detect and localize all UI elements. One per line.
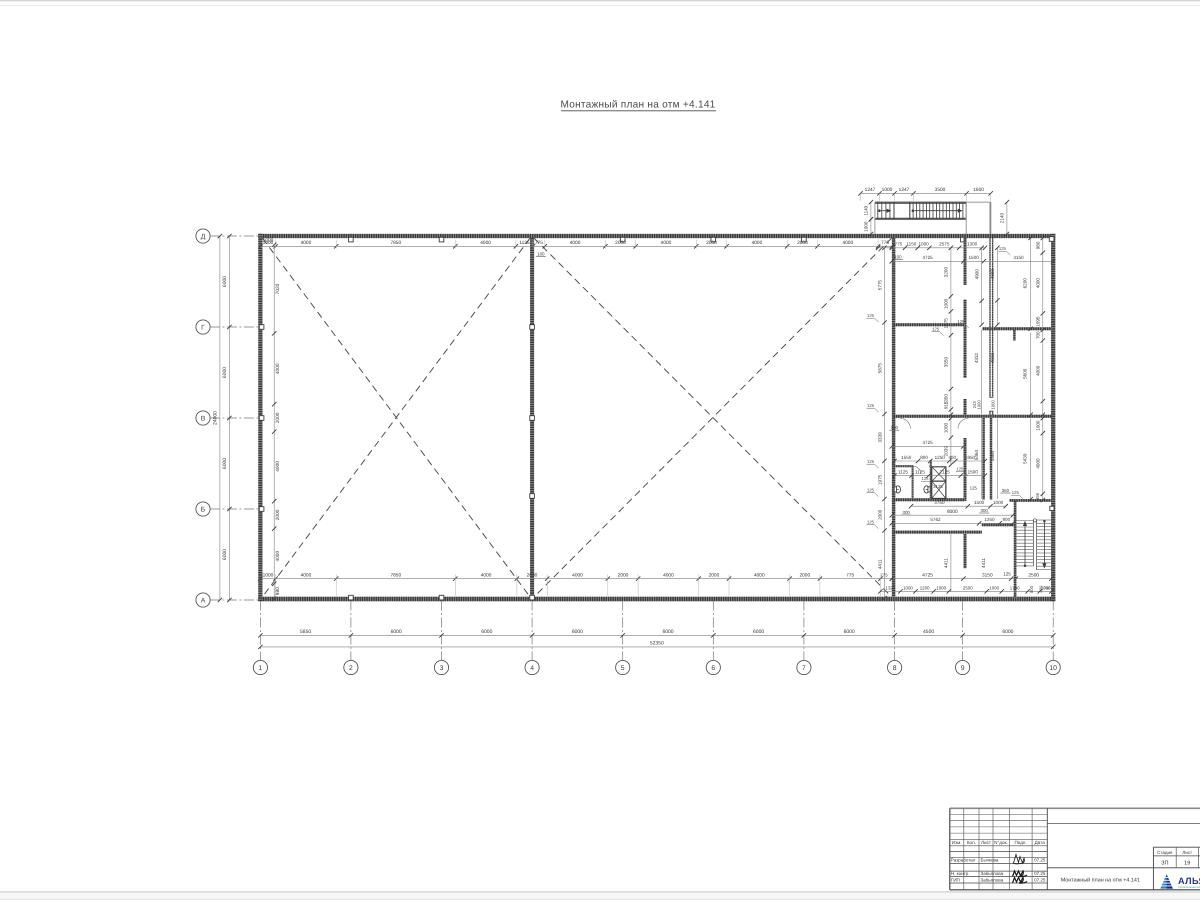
svg-text:8000: 8000 xyxy=(947,509,958,515)
svg-text:Д: Д xyxy=(201,233,206,240)
svg-text:6000: 6000 xyxy=(572,629,583,635)
svg-text:4725: 4725 xyxy=(922,572,933,578)
svg-text:2575: 2575 xyxy=(939,242,950,247)
svg-text:1350: 1350 xyxy=(984,517,995,522)
svg-text:Разработал: Разработал xyxy=(951,857,976,862)
svg-text:6200: 6200 xyxy=(1023,278,1028,289)
svg-text:5875: 5875 xyxy=(877,363,882,374)
svg-text:5775: 5775 xyxy=(877,280,882,291)
svg-text:1000: 1000 xyxy=(944,298,949,309)
svg-text:Б: Б xyxy=(201,506,206,513)
svg-text:359: 359 xyxy=(1035,492,1040,500)
svg-text:4000: 4000 xyxy=(275,551,281,562)
svg-text:А: А xyxy=(201,597,206,604)
svg-text:100: 100 xyxy=(894,254,902,259)
svg-text:8: 8 xyxy=(893,665,897,672)
svg-text:1000: 1000 xyxy=(991,399,996,409)
svg-text:3125: 3125 xyxy=(933,484,943,489)
svg-text:Монтажный план на отм +4.141: Монтажный план на отм +4.141 xyxy=(560,100,715,111)
svg-text:2000: 2000 xyxy=(615,240,626,246)
svg-text:Лист: Лист xyxy=(981,840,992,845)
svg-text:1550: 1550 xyxy=(901,455,912,460)
svg-text:Забьялова: Забьялова xyxy=(981,871,1004,876)
svg-text:125: 125 xyxy=(867,403,875,408)
svg-text:3150: 3150 xyxy=(982,572,993,578)
svg-text:1250: 1250 xyxy=(935,455,946,460)
svg-text:Г: Г xyxy=(201,324,205,331)
svg-text:Н. контр.: Н. контр. xyxy=(951,871,970,876)
svg-text:1000: 1000 xyxy=(1036,420,1041,431)
svg-text:В: В xyxy=(201,415,206,422)
svg-text:125: 125 xyxy=(956,466,964,471)
svg-text:1300: 1300 xyxy=(967,242,978,247)
svg-text:5: 5 xyxy=(621,665,625,672)
svg-text:125: 125 xyxy=(867,488,875,493)
svg-text:Дата: Дата xyxy=(1035,840,1046,845)
svg-text:2000: 2000 xyxy=(275,509,281,520)
svg-text:4411: 4411 xyxy=(877,559,882,569)
svg-text:2140: 2140 xyxy=(1000,213,1005,224)
svg-text:980: 980 xyxy=(275,587,281,595)
svg-text:1600: 1600 xyxy=(973,187,984,193)
svg-text:4000: 4000 xyxy=(481,572,492,578)
svg-text:2000: 2000 xyxy=(618,572,629,578)
svg-text:980: 980 xyxy=(1036,241,1041,249)
svg-text:2000: 2000 xyxy=(706,240,717,246)
svg-text:9: 9 xyxy=(961,665,965,672)
svg-text:3750: 3750 xyxy=(934,500,945,505)
svg-text:1125: 1125 xyxy=(915,469,925,474)
svg-text:4000: 4000 xyxy=(301,572,312,578)
svg-text:1000: 1000 xyxy=(989,585,999,590)
svg-text:7850: 7850 xyxy=(390,572,401,578)
svg-text:800: 800 xyxy=(1002,517,1010,522)
svg-text:300: 300 xyxy=(903,510,911,515)
svg-text:4150: 4150 xyxy=(1013,255,1024,260)
svg-text:07.25: 07.25 xyxy=(1034,877,1046,882)
svg-text:5850: 5850 xyxy=(300,629,311,635)
svg-text:N°док.: N°док. xyxy=(994,840,1008,845)
svg-text:4000: 4000 xyxy=(275,363,281,374)
svg-text:5762: 5762 xyxy=(930,517,941,522)
svg-text:6000: 6000 xyxy=(222,367,228,378)
svg-text:Забьялова: Забьялова xyxy=(981,877,1004,882)
svg-text:1000: 1000 xyxy=(882,187,893,193)
svg-text:2: 2 xyxy=(349,665,353,672)
svg-text:Стадия: Стадия xyxy=(1157,850,1173,855)
svg-text:7: 7 xyxy=(802,665,806,672)
svg-text:915: 915 xyxy=(943,401,948,409)
svg-text:4000: 4000 xyxy=(480,240,491,246)
svg-text:6000: 6000 xyxy=(222,549,228,560)
svg-text:1700: 1700 xyxy=(1010,585,1020,590)
svg-text:775: 775 xyxy=(895,242,903,247)
svg-text:3339: 3339 xyxy=(877,432,882,443)
svg-text:7020: 7020 xyxy=(275,283,281,294)
svg-text:4000: 4000 xyxy=(1036,458,1041,469)
svg-text:3550: 3550 xyxy=(944,357,949,368)
svg-text:4000: 4000 xyxy=(661,240,672,246)
svg-text:4000: 4000 xyxy=(275,461,281,472)
svg-text:ГИП: ГИП xyxy=(951,877,960,882)
svg-text:1000: 1000 xyxy=(864,221,869,232)
svg-text:4725: 4725 xyxy=(922,440,933,445)
svg-text:6000: 6000 xyxy=(222,276,228,287)
svg-text:1000: 1000 xyxy=(993,500,1004,505)
svg-text:2500: 2500 xyxy=(963,585,973,590)
svg-text:3: 3 xyxy=(440,665,444,672)
svg-text:4000: 4000 xyxy=(570,240,581,246)
svg-text:125: 125 xyxy=(970,486,978,491)
svg-text:1323: 1323 xyxy=(886,585,896,590)
svg-text:1125: 1125 xyxy=(898,469,908,474)
svg-text:775: 775 xyxy=(846,572,854,578)
svg-text:4000: 4000 xyxy=(842,240,853,246)
svg-text:6000: 6000 xyxy=(481,629,492,635)
svg-text:2000: 2000 xyxy=(527,572,538,578)
svg-text:Лист: Лист xyxy=(1182,850,1192,855)
svg-text:1200: 1200 xyxy=(920,585,930,590)
svg-text:780: 780 xyxy=(1044,585,1052,590)
svg-text:5600: 5600 xyxy=(1023,368,1028,379)
svg-text:19: 19 xyxy=(1184,861,1190,867)
svg-text:2000: 2000 xyxy=(709,572,720,578)
svg-text:52350: 52350 xyxy=(650,640,664,646)
svg-text:125: 125 xyxy=(922,476,930,481)
svg-text:300: 300 xyxy=(981,508,989,513)
svg-text:7850: 7850 xyxy=(390,240,401,246)
svg-text:2500: 2500 xyxy=(1028,572,1039,578)
svg-text:6: 6 xyxy=(711,665,715,672)
svg-text:350: 350 xyxy=(1002,488,1010,493)
svg-text:1500: 1500 xyxy=(968,255,979,260)
svg-text:Кол.: Кол. xyxy=(967,840,976,845)
svg-text:125: 125 xyxy=(867,459,875,464)
svg-text:2000: 2000 xyxy=(799,572,810,578)
svg-text:6000: 6000 xyxy=(844,629,855,635)
svg-text:100: 100 xyxy=(537,251,545,256)
svg-text:4: 4 xyxy=(530,665,534,672)
svg-text:1000: 1000 xyxy=(977,399,982,409)
svg-text:Монтажный план на отм +4.141: Монтажный план на отм +4.141 xyxy=(1061,878,1140,884)
svg-text:1575: 1575 xyxy=(944,318,949,329)
svg-text:4411: 4411 xyxy=(981,558,986,568)
svg-text:4000: 4000 xyxy=(1036,365,1041,376)
svg-text:2000: 2000 xyxy=(797,240,808,246)
svg-text:4900: 4900 xyxy=(990,269,995,280)
svg-text:125: 125 xyxy=(867,313,875,318)
svg-text:1000: 1000 xyxy=(903,585,913,590)
svg-text:2000: 2000 xyxy=(877,509,882,520)
svg-text:10: 10 xyxy=(1049,665,1057,672)
svg-text:Подп.: Подп. xyxy=(1014,840,1026,845)
svg-text:1140: 1140 xyxy=(864,205,869,215)
svg-text:1000: 1000 xyxy=(918,242,929,247)
svg-text:2125: 2125 xyxy=(939,469,950,474)
svg-text:700: 700 xyxy=(1036,331,1041,339)
svg-text:1095: 1095 xyxy=(1036,316,1041,327)
svg-text:Изм.: Изм. xyxy=(952,840,962,845)
svg-text:24000: 24000 xyxy=(213,411,219,425)
svg-text:1125: 1125 xyxy=(519,240,530,246)
svg-text:800: 800 xyxy=(1029,585,1034,593)
svg-text:1: 1 xyxy=(259,665,263,672)
svg-text:1000: 1000 xyxy=(263,572,274,578)
svg-text:6000: 6000 xyxy=(1002,629,1013,635)
svg-text:6000: 6000 xyxy=(391,629,402,635)
svg-text:5439: 5439 xyxy=(1023,453,1028,464)
svg-text:4000: 4000 xyxy=(301,240,312,246)
svg-text:07.25: 07.25 xyxy=(1034,857,1046,862)
svg-text:1975: 1975 xyxy=(877,474,882,485)
svg-text:800: 800 xyxy=(920,455,928,460)
svg-text:125: 125 xyxy=(932,327,940,332)
svg-text:3200: 3200 xyxy=(944,267,949,278)
svg-text:125: 125 xyxy=(1003,571,1011,576)
svg-text:6000: 6000 xyxy=(753,629,764,635)
svg-text:Бычкова: Бычкова xyxy=(981,857,999,862)
svg-text:4000: 4000 xyxy=(752,240,763,246)
svg-text:ЗП: ЗП xyxy=(1161,861,1168,867)
svg-text:6000: 6000 xyxy=(222,458,228,469)
svg-text:4000: 4000 xyxy=(572,572,583,578)
svg-text:4000: 4000 xyxy=(663,572,674,578)
svg-text:1500: 1500 xyxy=(974,500,985,505)
svg-text:400: 400 xyxy=(948,455,956,460)
svg-text:1247: 1247 xyxy=(865,187,876,193)
svg-text:1000: 1000 xyxy=(944,422,949,433)
svg-text:4500: 4500 xyxy=(923,629,934,635)
svg-text:4900: 4900 xyxy=(975,269,980,280)
svg-text:775: 775 xyxy=(880,572,888,577)
svg-text:5564: 5564 xyxy=(990,450,995,461)
svg-text:4411: 4411 xyxy=(943,558,948,568)
svg-text:125: 125 xyxy=(1012,490,1020,495)
svg-text:775: 775 xyxy=(881,240,889,246)
svg-text:07.25: 07.25 xyxy=(1034,871,1046,876)
svg-text:4725: 4725 xyxy=(922,255,933,260)
svg-text:1950: 1950 xyxy=(965,455,976,460)
svg-text:1247: 1247 xyxy=(899,187,910,193)
svg-text:125: 125 xyxy=(999,246,1007,251)
svg-text:1000: 1000 xyxy=(263,238,274,244)
svg-text:4632: 4632 xyxy=(990,352,995,363)
svg-text:125: 125 xyxy=(867,520,875,525)
svg-text:775: 775 xyxy=(535,240,543,246)
svg-text:125: 125 xyxy=(957,319,965,324)
svg-text:4332: 4332 xyxy=(974,352,979,363)
svg-text:1150: 1150 xyxy=(906,242,916,247)
svg-text:1000: 1000 xyxy=(936,585,946,590)
svg-text:4000: 4000 xyxy=(1036,278,1041,289)
svg-text:3500: 3500 xyxy=(935,187,946,193)
svg-text:300: 300 xyxy=(891,425,899,430)
svg-text:строительная компания: строительная компания xyxy=(1178,885,1200,889)
svg-text:6000: 6000 xyxy=(662,629,673,635)
svg-text:4000: 4000 xyxy=(754,572,765,578)
svg-text:243: 243 xyxy=(972,401,977,409)
svg-text:1500: 1500 xyxy=(968,469,979,474)
svg-text:2000: 2000 xyxy=(275,412,281,423)
